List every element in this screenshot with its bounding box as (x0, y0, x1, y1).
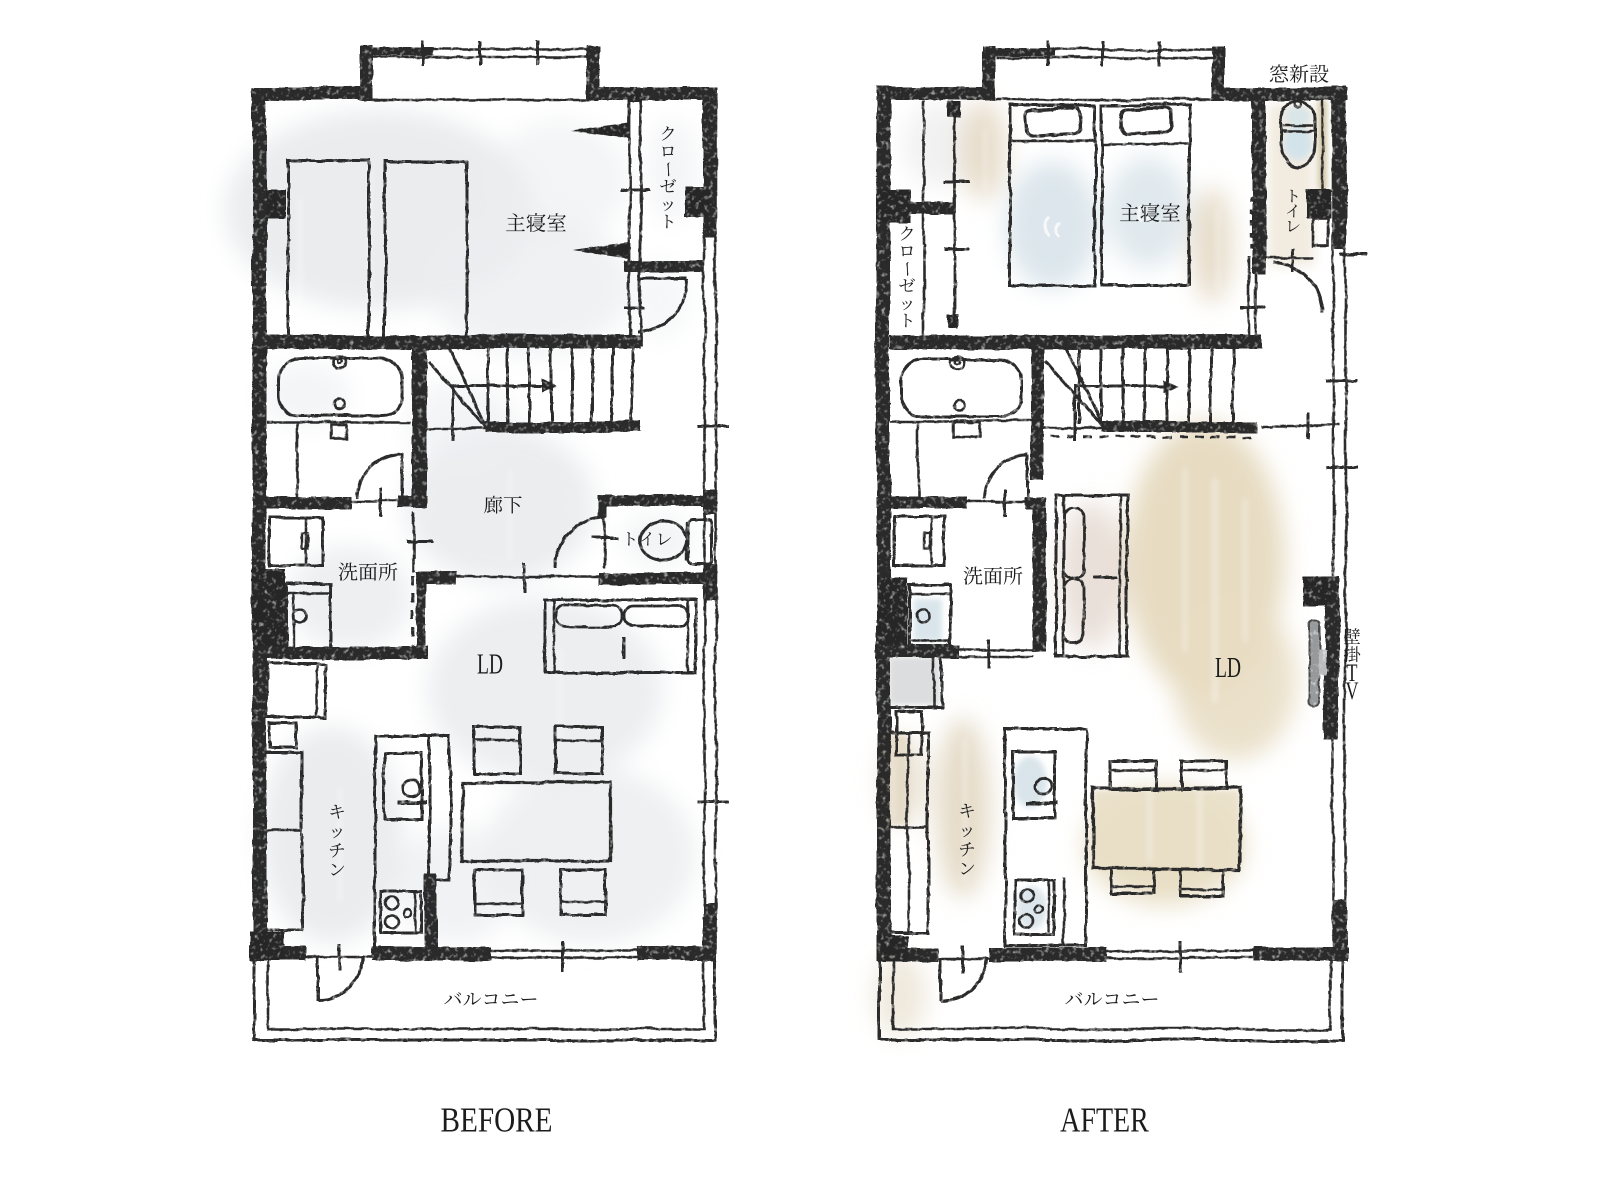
svg-text:LD: LD (477, 649, 503, 680)
svg-text:AFTER: AFTER (1060, 1101, 1149, 1140)
svg-text:BEFORE: BEFORE (440, 1100, 552, 1139)
svg-text:V: V (1346, 677, 1359, 705)
svg-text:LD: LD (1215, 653, 1241, 684)
